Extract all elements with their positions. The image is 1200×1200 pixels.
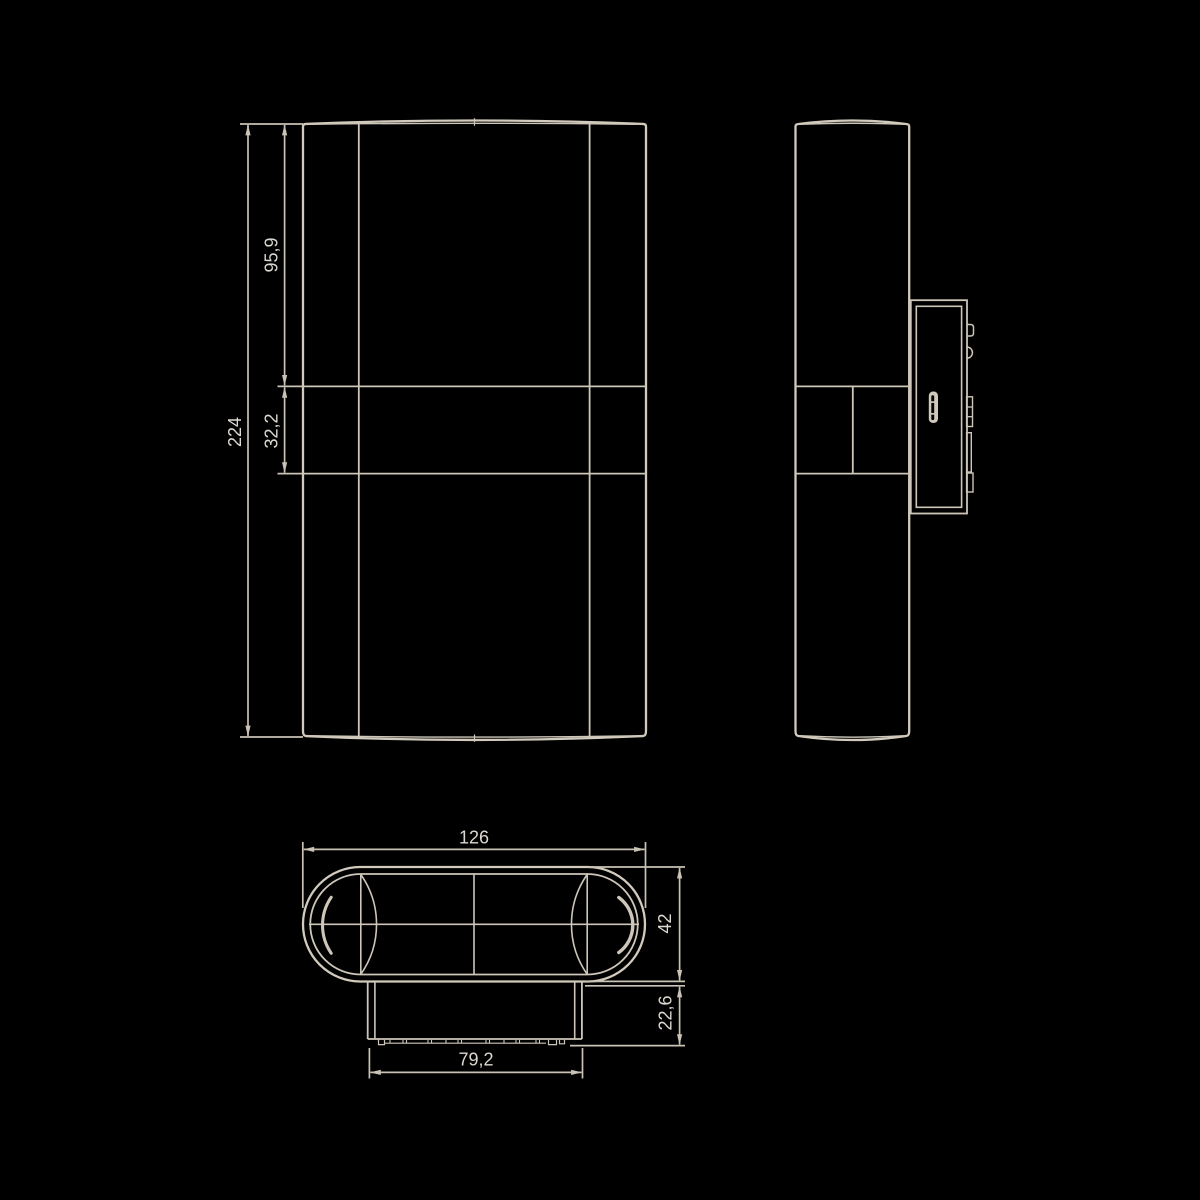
- svg-text:32,2: 32,2: [261, 413, 281, 448]
- svg-text:42: 42: [655, 913, 675, 933]
- svg-text:126: 126: [459, 828, 489, 848]
- svg-text:22,6: 22,6: [656, 995, 676, 1030]
- svg-text:95,9: 95,9: [261, 237, 281, 272]
- svg-text:224: 224: [225, 417, 245, 447]
- svg-text:79,2: 79,2: [458, 1050, 493, 1070]
